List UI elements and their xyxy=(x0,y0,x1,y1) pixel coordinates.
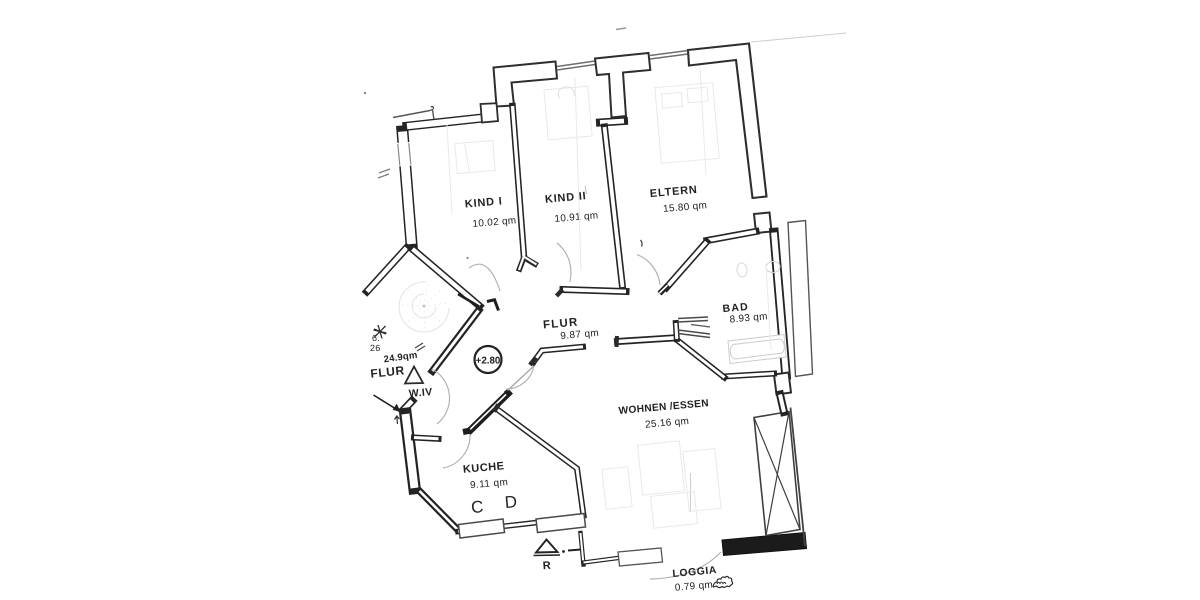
svg-text:D: D xyxy=(504,492,518,512)
svg-text:R: R xyxy=(542,560,551,573)
svg-text:26: 26 xyxy=(370,343,380,353)
svg-text:C: C xyxy=(470,497,484,517)
svg-text:W.IV: W.IV xyxy=(408,386,433,400)
svg-text:+2.80: +2.80 xyxy=(476,356,501,367)
svg-text:6.: 6. xyxy=(372,333,380,343)
